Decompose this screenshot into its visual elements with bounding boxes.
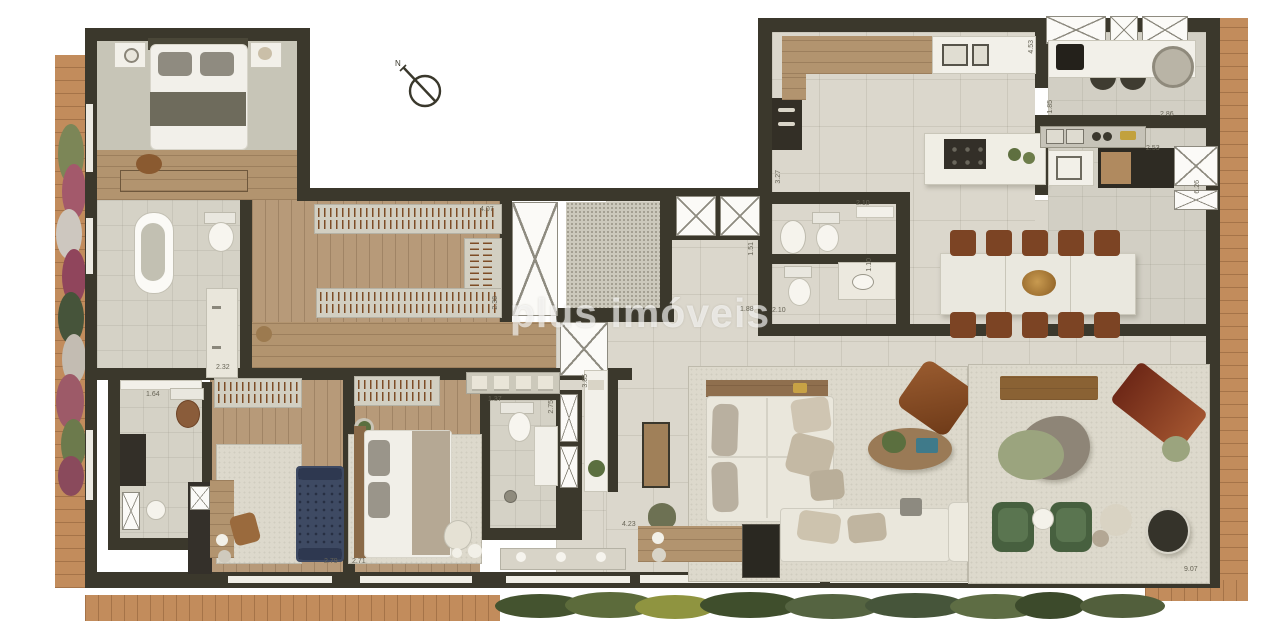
dimension-label: 9.07: [1184, 566, 1198, 573]
apartment-floor-plan: N plus imóveis 4.072.382.321.642.792.711…: [0, 0, 1280, 640]
dimension-label: 1.85: [1047, 100, 1054, 114]
dimension-label: 4.07: [480, 206, 494, 213]
dimension-label: 2.71: [352, 558, 366, 565]
dimension-label: 2.75: [548, 400, 555, 414]
dimension-label: 1.64: [146, 391, 160, 398]
dimension-label: 2.10: [856, 200, 870, 207]
dimension-label: 4.53: [1028, 40, 1035, 54]
dimension-label: 3.27: [775, 170, 782, 184]
dimension-label: 3.85: [582, 374, 589, 388]
dimension-label: 6.26: [1194, 180, 1201, 194]
dimension-label: 2.79: [324, 558, 338, 565]
dimension-label: 2.32: [216, 364, 230, 371]
dimension-label: 2.53: [1146, 145, 1160, 152]
dimension-label: 1.88: [740, 306, 754, 313]
dimension-labels-layer: 4.072.382.321.642.792.711.372.753.854.23…: [0, 0, 1280, 640]
dimension-label: 2.38: [492, 296, 499, 310]
dimension-label: 1.10: [866, 258, 873, 272]
dimension-label: 1.37: [488, 396, 502, 403]
dimension-label: 2.10: [772, 307, 786, 314]
dimension-label: 1.51: [748, 242, 755, 256]
dimension-label: 4.23: [622, 521, 636, 528]
dimension-label: 2.86: [1160, 111, 1174, 118]
